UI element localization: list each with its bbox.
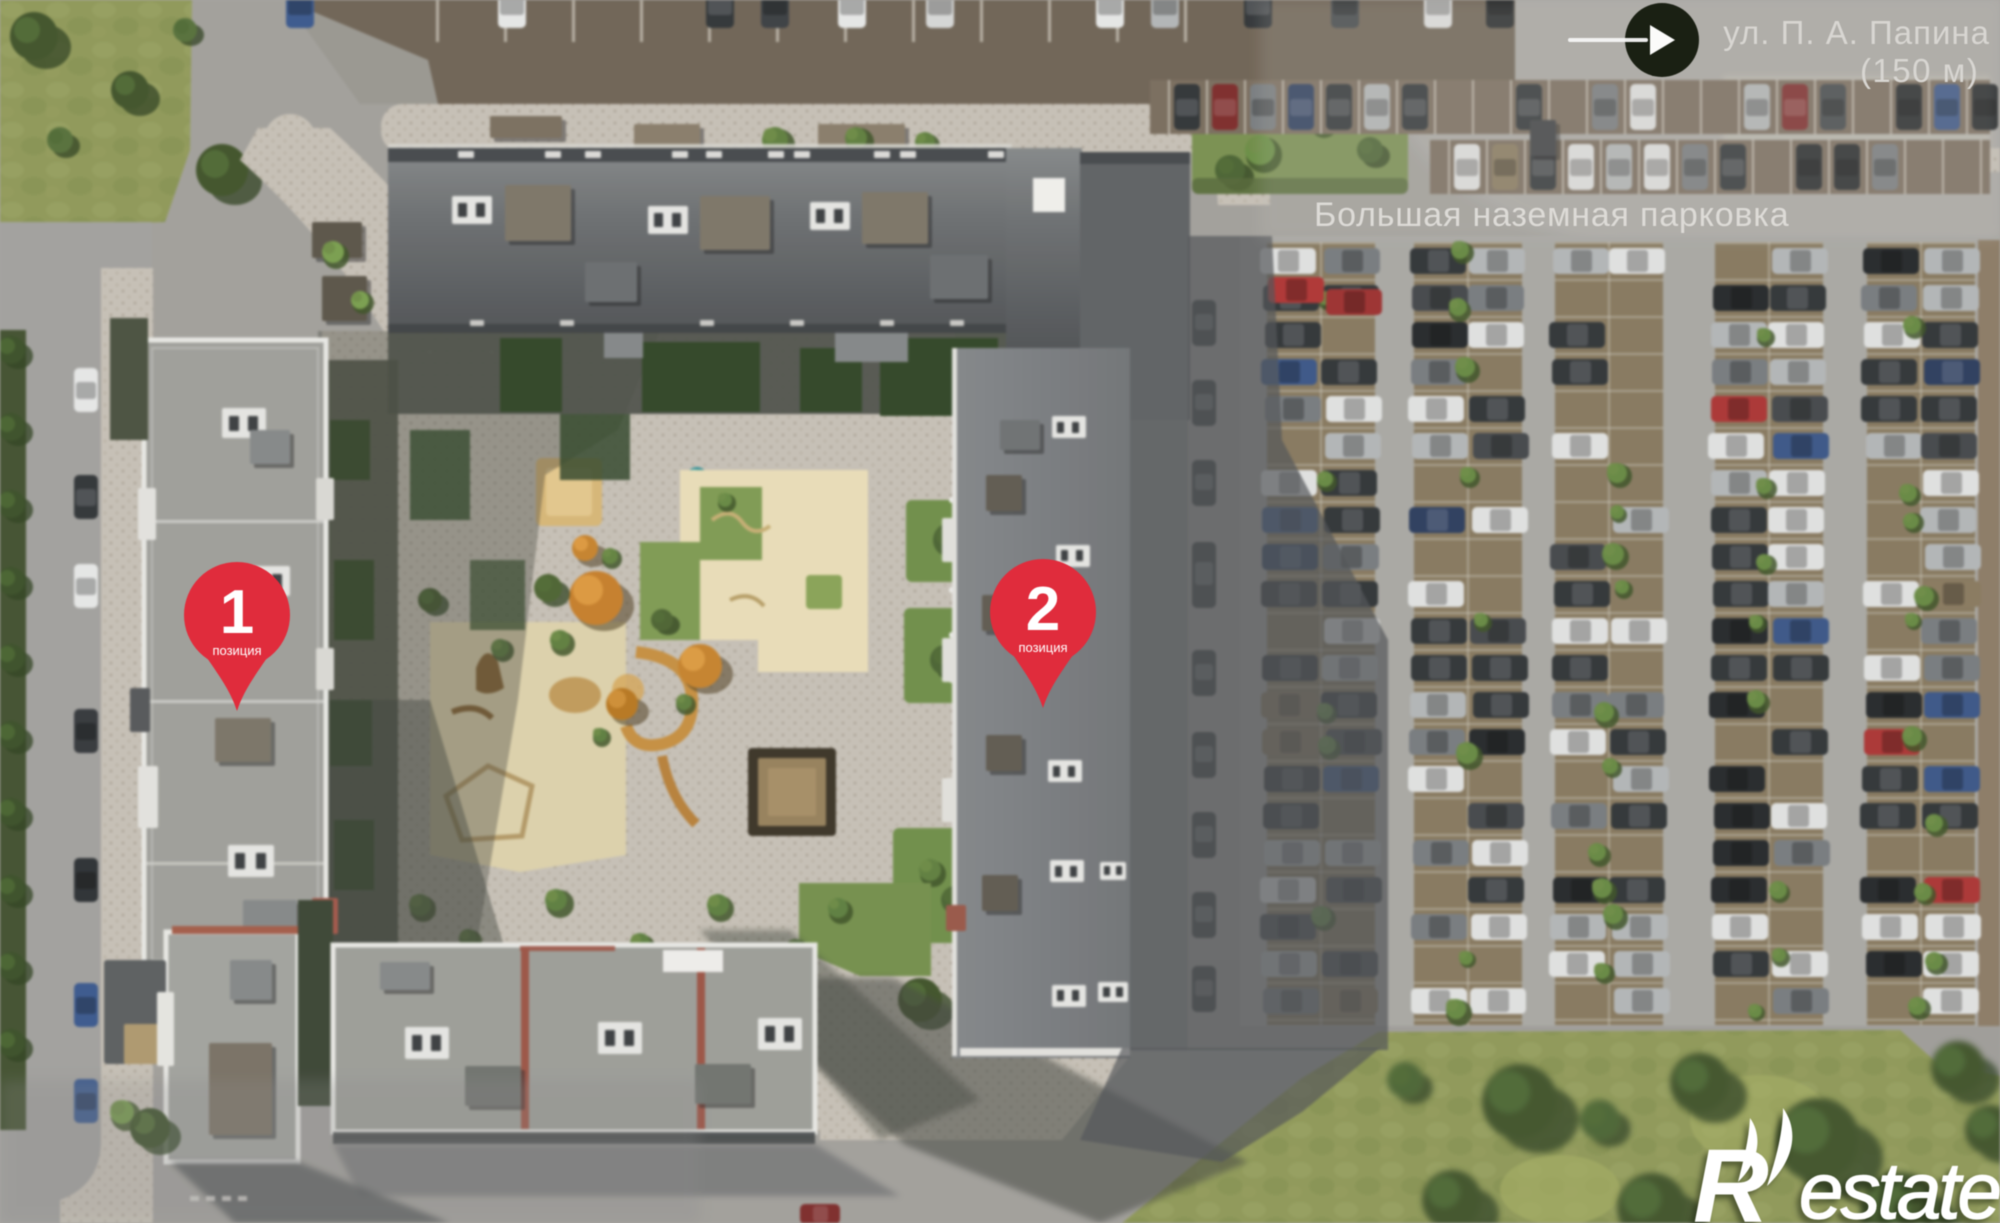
svg-text:1: 1 (220, 578, 254, 647)
svg-text:позиция: позиция (1018, 640, 1067, 655)
svg-text:estate: estate (1799, 1146, 1999, 1223)
svg-text:позиция: позиция (212, 643, 261, 658)
svg-text:2: 2 (1026, 575, 1060, 644)
svg-text:R: R (1693, 1128, 1769, 1223)
